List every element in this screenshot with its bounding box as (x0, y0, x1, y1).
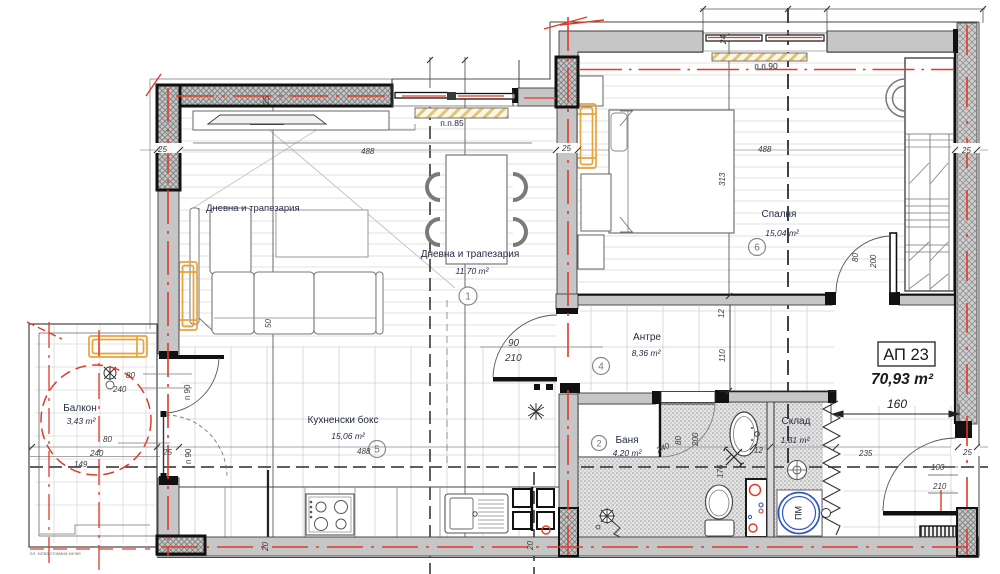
svg-text:25: 25 (962, 448, 972, 457)
svg-text:200: 200 (869, 254, 878, 269)
svg-text:Антре: Антре (633, 332, 661, 343)
svg-text:80: 80 (851, 253, 860, 262)
svg-text:488: 488 (357, 447, 371, 456)
svg-text:25: 25 (561, 144, 571, 153)
svg-text:240: 240 (112, 385, 127, 394)
svg-text:п 90: п 90 (183, 384, 192, 400)
svg-text:235: 235 (858, 449, 873, 458)
svg-text:1: 1 (465, 292, 471, 303)
svg-text:3,43 m²: 3,43 m² (67, 416, 97, 426)
svg-text:Дневна и трапезария: Дневна и трапезария (206, 203, 300, 214)
svg-text:5: 5 (374, 445, 380, 456)
svg-text:15,06 m²: 15,06 m² (331, 431, 366, 441)
svg-text:Кухненски бокс: Кухненски бокс (308, 414, 379, 426)
svg-text:2: 2 (596, 439, 601, 449)
svg-text:12: 12 (717, 309, 726, 318)
svg-text:4: 4 (598, 362, 604, 373)
svg-text:8,36 m²: 8,36 m² (632, 348, 662, 358)
svg-text:20: 20 (261, 542, 270, 552)
svg-text:160: 160 (887, 397, 907, 411)
svg-text:п.п.90: п.п.90 (754, 61, 778, 71)
svg-text:313: 313 (718, 172, 727, 186)
svg-text:4,20 m²: 4,20 m² (613, 448, 643, 458)
svg-text:176: 176 (716, 464, 725, 478)
svg-text:11,70 m²: 11,70 m² (456, 266, 490, 276)
svg-text:Спалня: Спалня (762, 209, 797, 220)
svg-text:488: 488 (758, 145, 772, 154)
svg-text:АП 23: АП 23 (883, 346, 929, 364)
svg-text:15,04 m²: 15,04 m² (765, 228, 800, 238)
svg-text:24: 24 (719, 35, 728, 45)
svg-text:ПМ: ПМ (793, 506, 803, 520)
svg-text:149: 149 (74, 460, 88, 469)
svg-text:110: 110 (718, 349, 727, 362)
svg-text:80: 80 (674, 436, 683, 445)
svg-text:210: 210 (932, 482, 947, 491)
svg-text:488: 488 (361, 147, 375, 156)
svg-text:6: 6 (754, 243, 760, 254)
svg-text:Склад: Склад (782, 416, 811, 427)
svg-text:Дневна и трапезария: Дневна и трапезария (421, 249, 520, 260)
svg-text:п.п.85: п.п.85 (440, 118, 464, 128)
svg-text:12: 12 (754, 446, 763, 455)
svg-text:100: 100 (931, 463, 945, 472)
svg-text:80: 80 (103, 435, 112, 444)
svg-text:25: 25 (961, 146, 971, 155)
svg-text:25: 25 (162, 448, 172, 457)
svg-text:пл. котва стомана копие: пл. котва стомана копие (30, 551, 81, 556)
svg-text:25: 25 (262, 96, 271, 106)
svg-text:70,93 m²: 70,93 m² (871, 371, 934, 388)
svg-text:п 90: п 90 (184, 448, 193, 464)
svg-text:1,31 m²: 1,31 m² (781, 435, 811, 445)
svg-text:210: 210 (504, 353, 522, 364)
svg-text:25: 25 (157, 145, 167, 154)
svg-text:200: 200 (691, 432, 700, 447)
svg-text:80: 80 (126, 371, 135, 380)
svg-text:240: 240 (89, 449, 104, 458)
svg-text:Балкон: Балкон (63, 403, 97, 414)
svg-text:20: 20 (526, 541, 535, 551)
svg-text:50: 50 (264, 319, 273, 328)
svg-text:Баня: Баня (615, 435, 638, 446)
